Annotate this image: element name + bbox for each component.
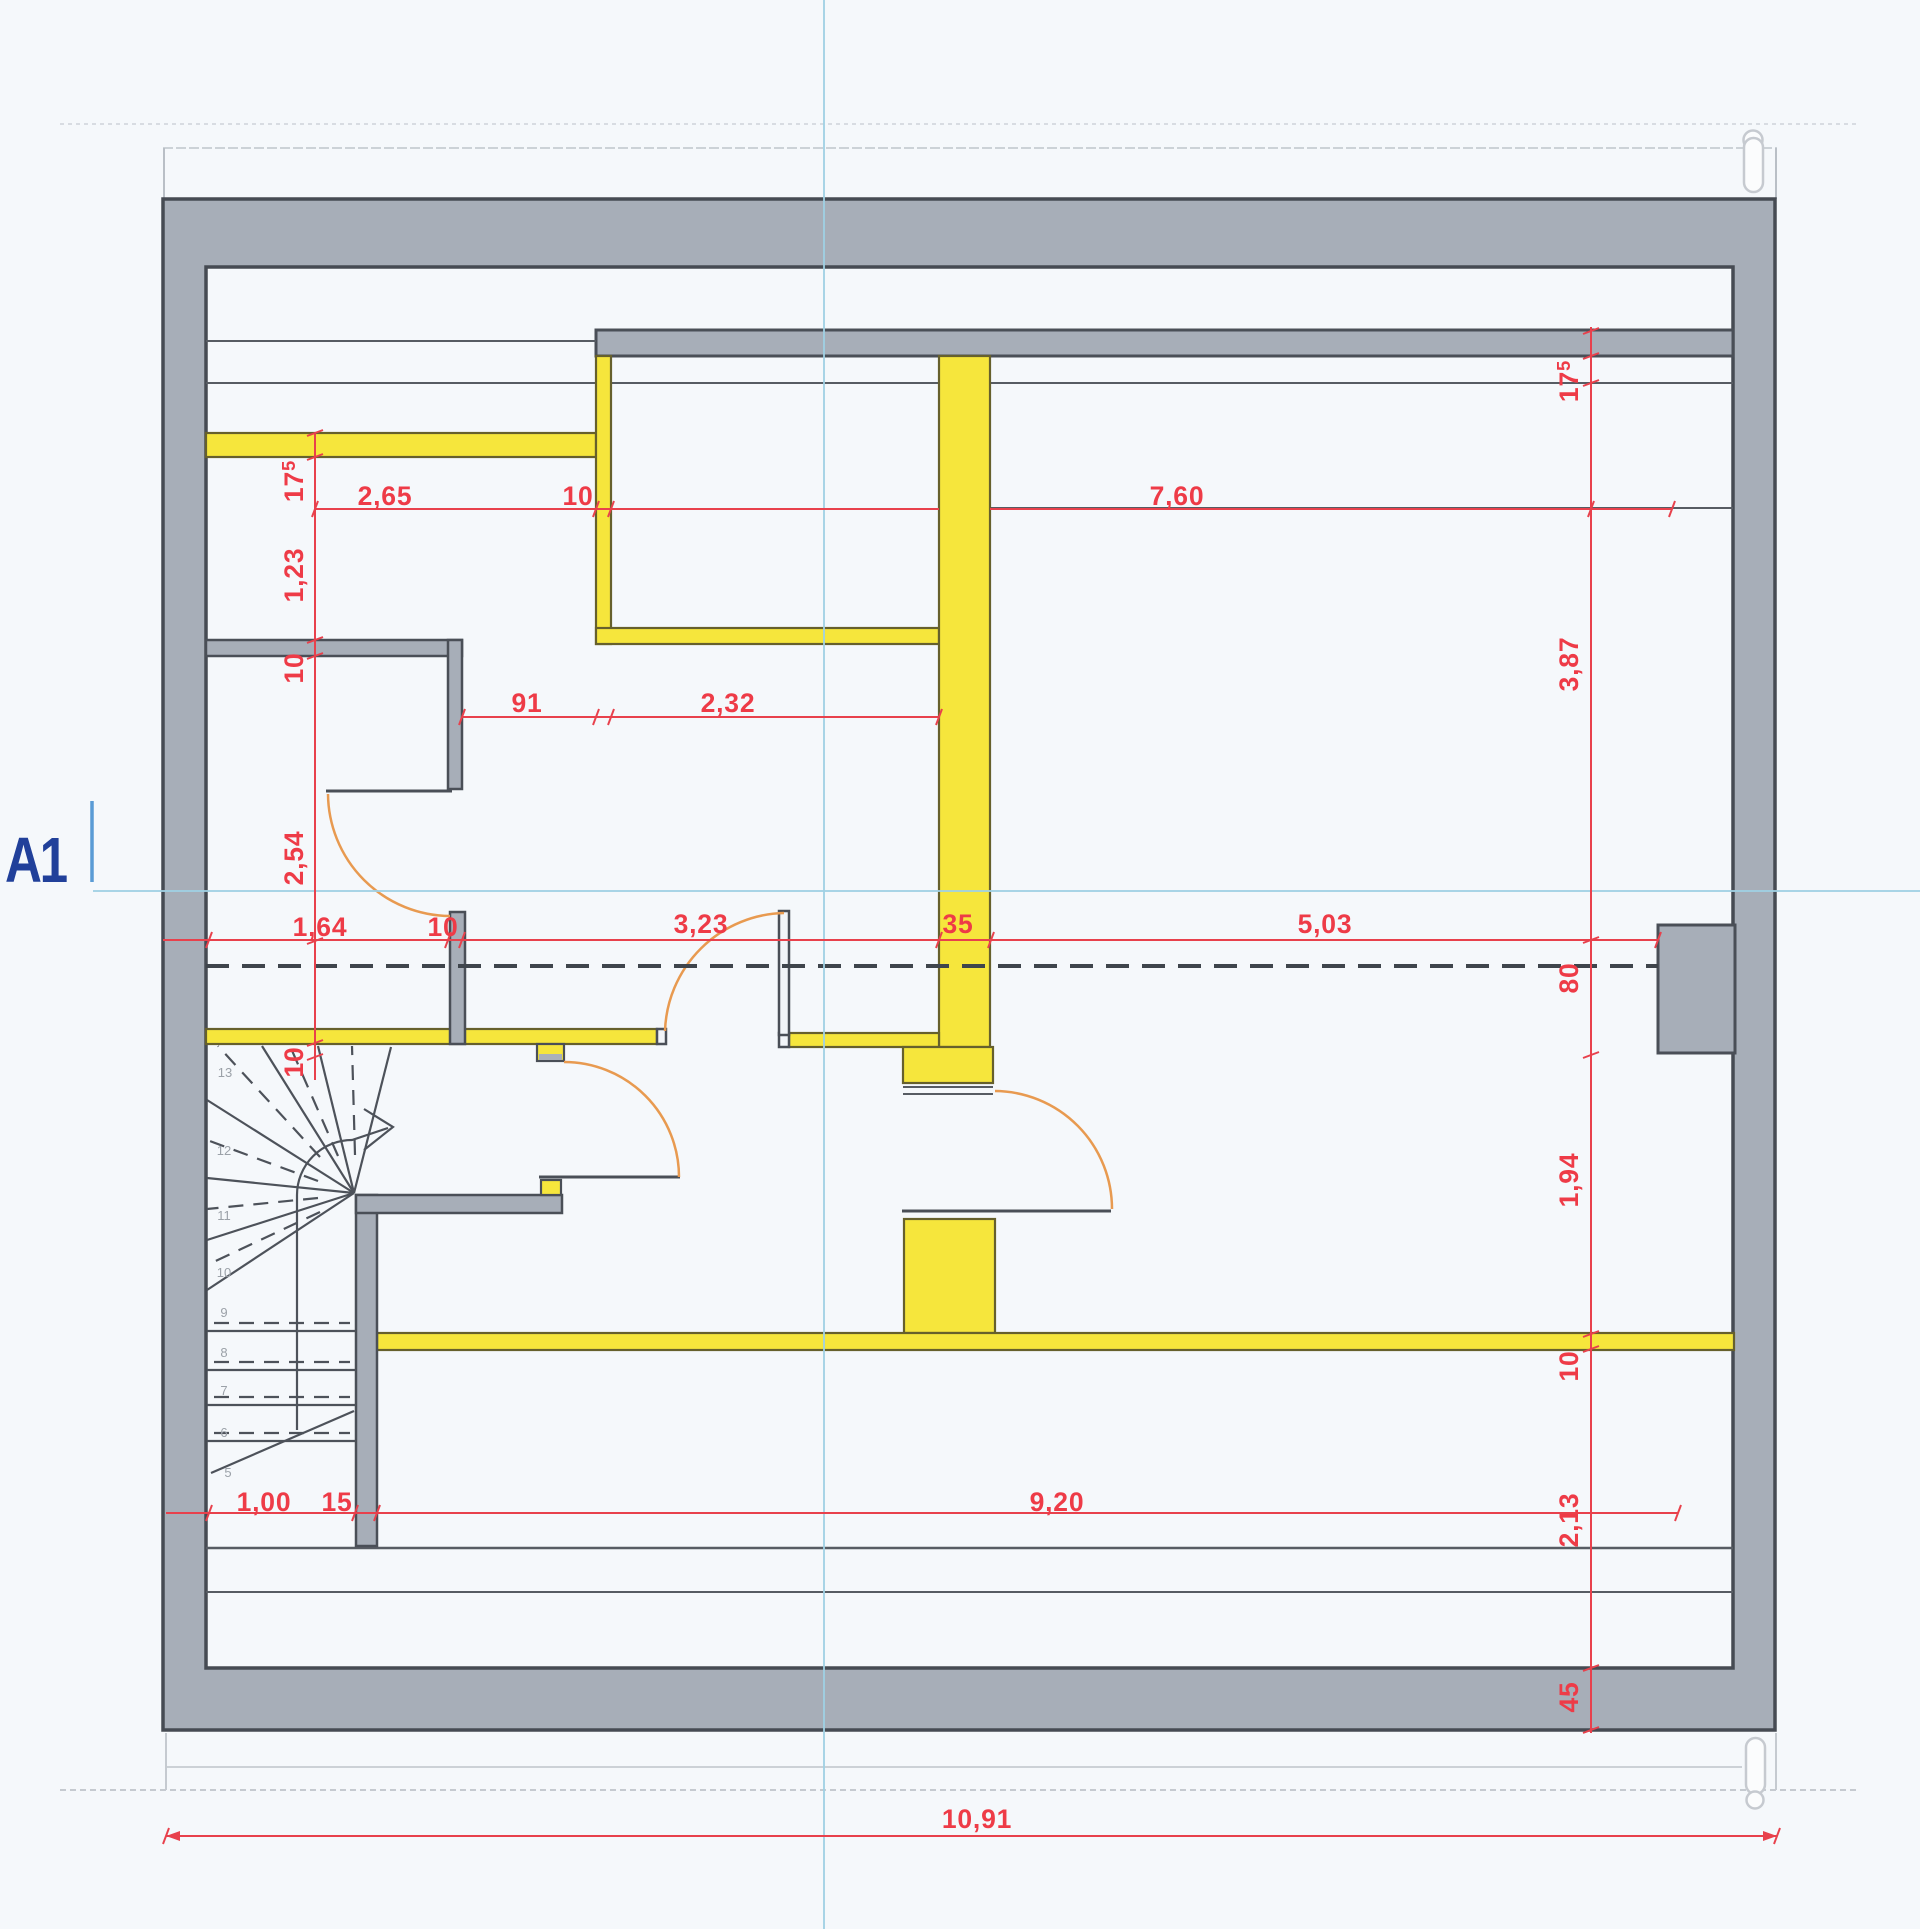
svg-text:80: 80 [1554,962,1584,993]
svg-text:45: 45 [1554,1681,1584,1712]
svg-text:3,87: 3,87 [1554,637,1584,692]
svg-text:1,64: 1,64 [293,912,348,942]
svg-text:11: 11 [217,1208,231,1223]
svg-text:91: 91 [511,688,542,718]
svg-text:7: 7 [220,1383,227,1398]
svg-text:10: 10 [279,1046,309,1077]
svg-text:10: 10 [562,481,593,511]
svg-text:10: 10 [217,1265,231,1280]
svg-text:1,23: 1,23 [279,548,309,603]
svg-text:3,23: 3,23 [674,909,729,939]
svg-text:8: 8 [220,1345,227,1360]
svg-text:12: 12 [217,1143,231,1158]
svg-text:1,94: 1,94 [1554,1153,1584,1208]
svg-text:7,60: 7,60 [1150,481,1205,511]
svg-text:10: 10 [1554,1350,1584,1381]
svg-text:A1: A1 [5,826,67,897]
svg-text:13: 13 [218,1065,232,1080]
svg-text:9: 9 [220,1305,227,1320]
svg-text:10: 10 [427,912,458,942]
svg-text:2,54: 2,54 [279,831,309,886]
svg-text:35: 35 [942,909,973,939]
svg-text:5,03: 5,03 [1298,909,1353,939]
svg-text:2,32: 2,32 [701,688,756,718]
svg-text:5: 5 [224,1465,231,1480]
svg-text:2,13: 2,13 [1554,1493,1584,1548]
svg-text:9,20: 9,20 [1030,1487,1085,1517]
svg-text:6: 6 [220,1425,227,1440]
svg-text:1,00: 1,00 [237,1487,292,1517]
svg-text:15: 15 [321,1487,352,1517]
svg-text:10: 10 [279,652,309,683]
svg-text:10,91: 10,91 [942,1804,1012,1834]
svg-text:2,65: 2,65 [358,481,413,511]
